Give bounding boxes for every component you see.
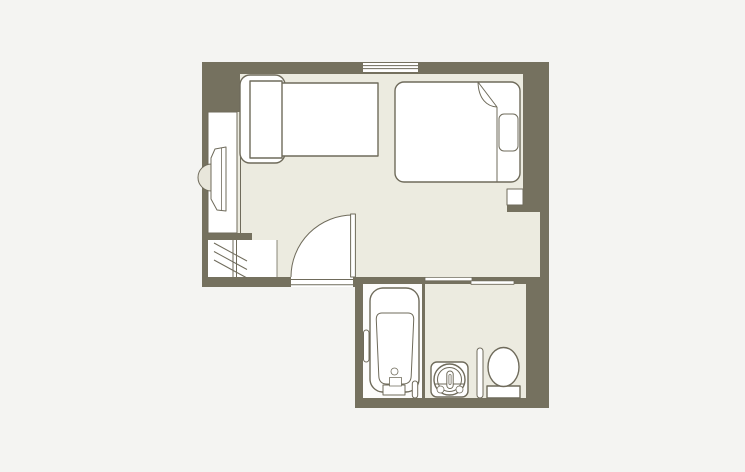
wall-right-step	[507, 205, 549, 212]
door-threshold-gap	[291, 277, 353, 287]
toilet-partition	[477, 348, 483, 398]
washbasin-knob-left	[437, 386, 444, 393]
single-bed-pillow	[250, 81, 282, 158]
entrance	[208, 240, 277, 278]
bath-door-post	[412, 381, 417, 398]
double-bed	[395, 82, 520, 182]
bath-wall-handle	[364, 330, 370, 362]
window-gap	[363, 63, 418, 72]
washbasin-faucet-icon	[447, 371, 453, 389]
bathtub-faucet-deck	[383, 385, 405, 395]
wall-bathroom-left	[355, 277, 363, 408]
toilet	[477, 348, 520, 399]
door-leaf	[351, 214, 356, 277]
wall-right-upper	[523, 62, 549, 205]
toilet-tank	[487, 386, 520, 398]
bathtub-faucet-neck	[390, 378, 402, 387]
wall-bath-partition	[422, 284, 425, 398]
single-bed	[240, 75, 378, 163]
toilet-bowl	[488, 348, 519, 387]
window	[363, 63, 418, 72]
double-bed-pillow	[499, 114, 518, 151]
wall-right-lower	[540, 212, 549, 277]
bathtub-room	[364, 288, 420, 398]
nightstand-niche	[507, 189, 523, 205]
floor-plan	[0, 0, 745, 472]
wall-bathroom-right	[526, 277, 549, 408]
floor-plan-canvas	[0, 0, 745, 472]
wall-closet-bar	[202, 233, 252, 240]
desk-icon	[211, 147, 226, 211]
washbasin	[431, 362, 468, 397]
wall-bathroom-bottom	[355, 398, 549, 408]
bathtub-drain-icon	[391, 368, 398, 375]
washbasin-knob-right	[456, 386, 463, 393]
sliding-door-panel-2	[471, 281, 514, 284]
sliding-door-panel-1	[425, 277, 472, 280]
